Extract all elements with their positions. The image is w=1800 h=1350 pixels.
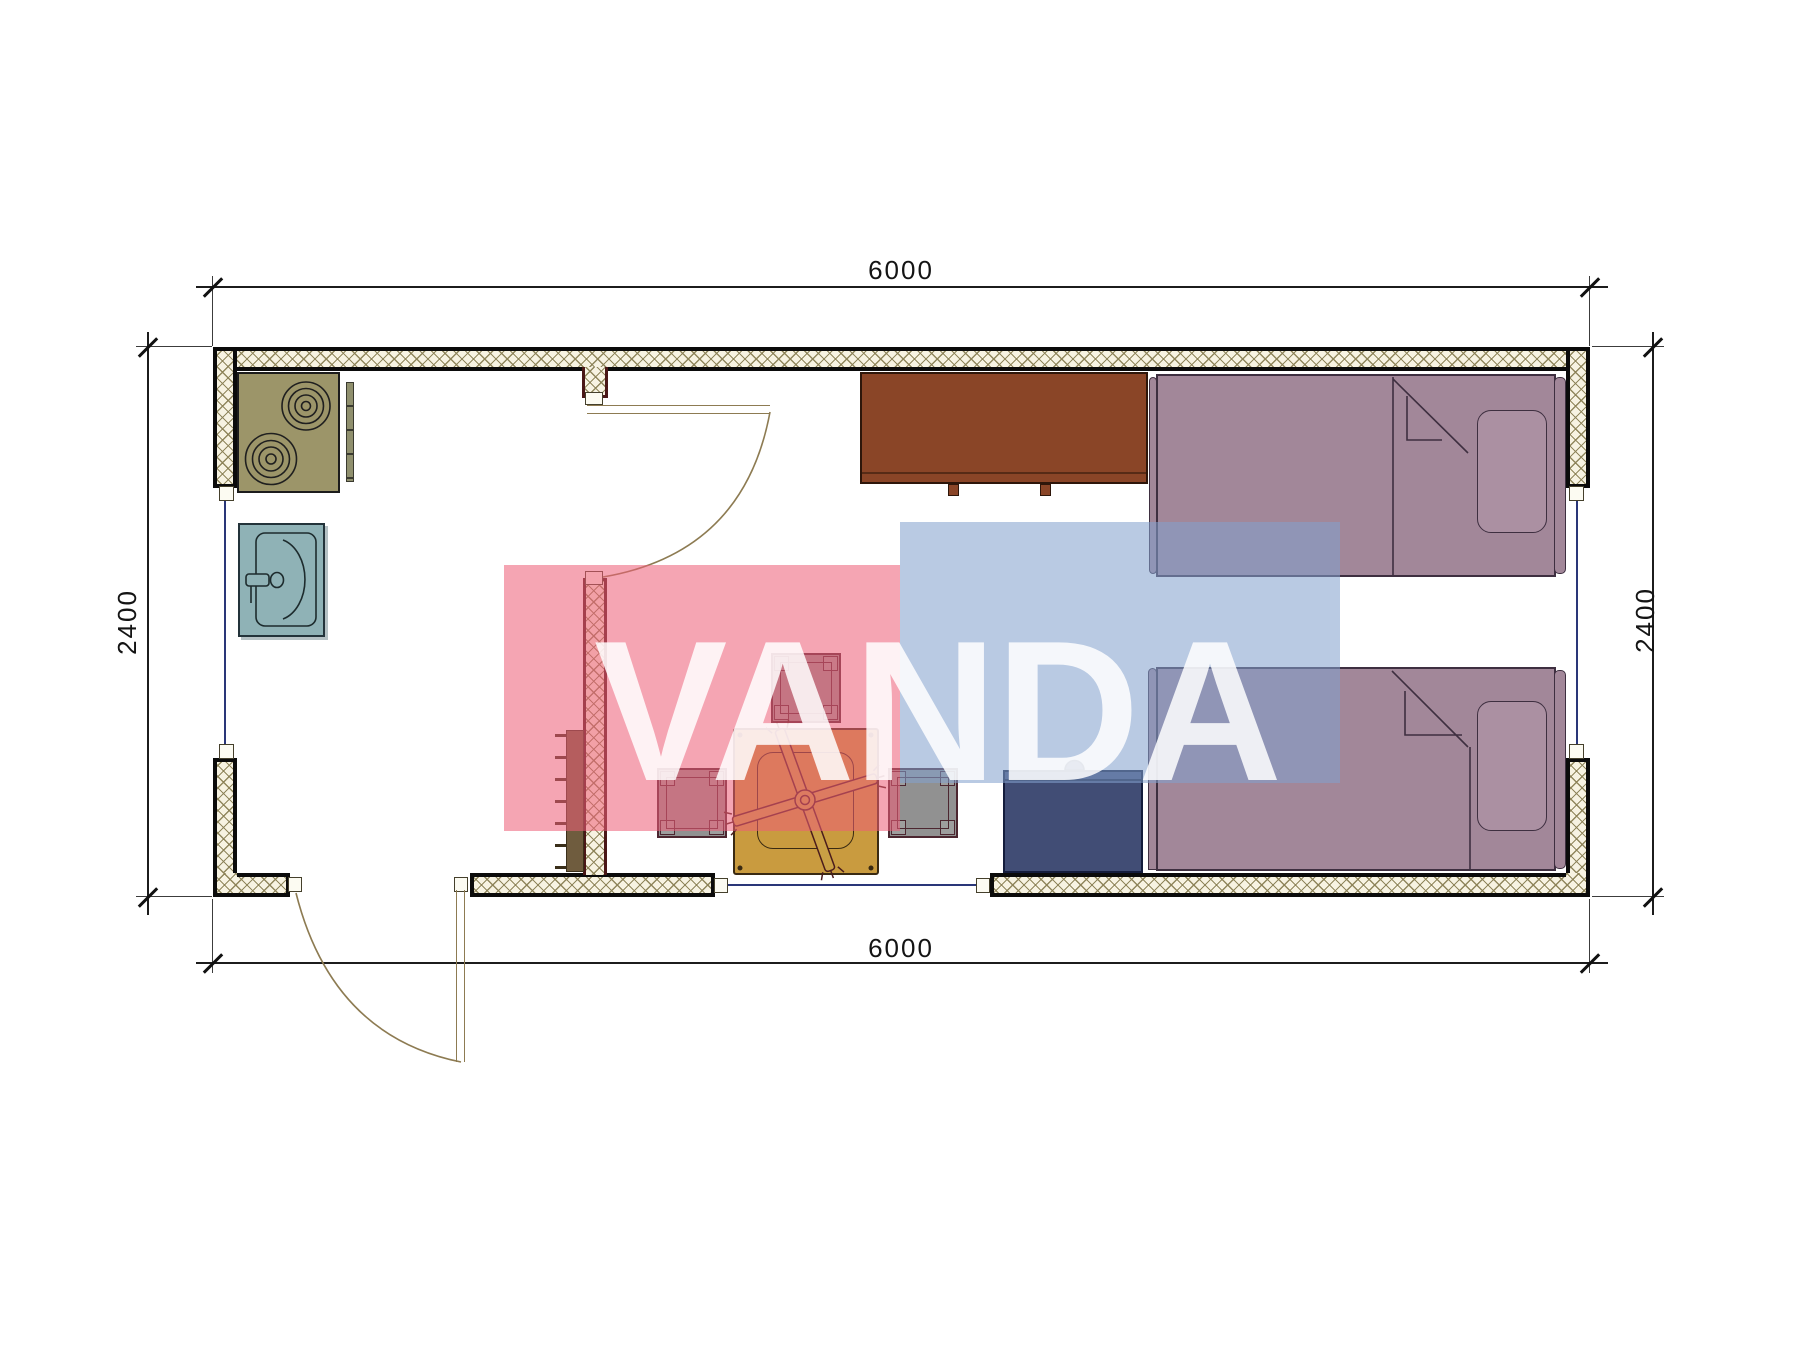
floor-plan-canvas: 6000 6000 2400 2400: [0, 0, 1800, 1350]
burner-icon: [246, 382, 331, 485]
interior-door-arc: [603, 412, 770, 577]
watermark-text: VANDA: [594, 612, 1314, 822]
entrance-door-arc: [296, 893, 461, 1062]
sink-basin-icon: [246, 533, 316, 626]
blanket-fold-lines: [1392, 377, 1470, 869]
